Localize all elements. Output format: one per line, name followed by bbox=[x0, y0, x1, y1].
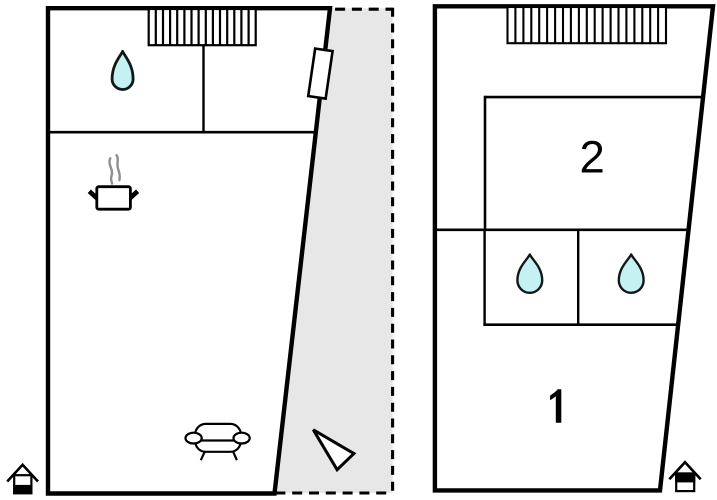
svg-text:2: 2 bbox=[580, 132, 605, 183]
